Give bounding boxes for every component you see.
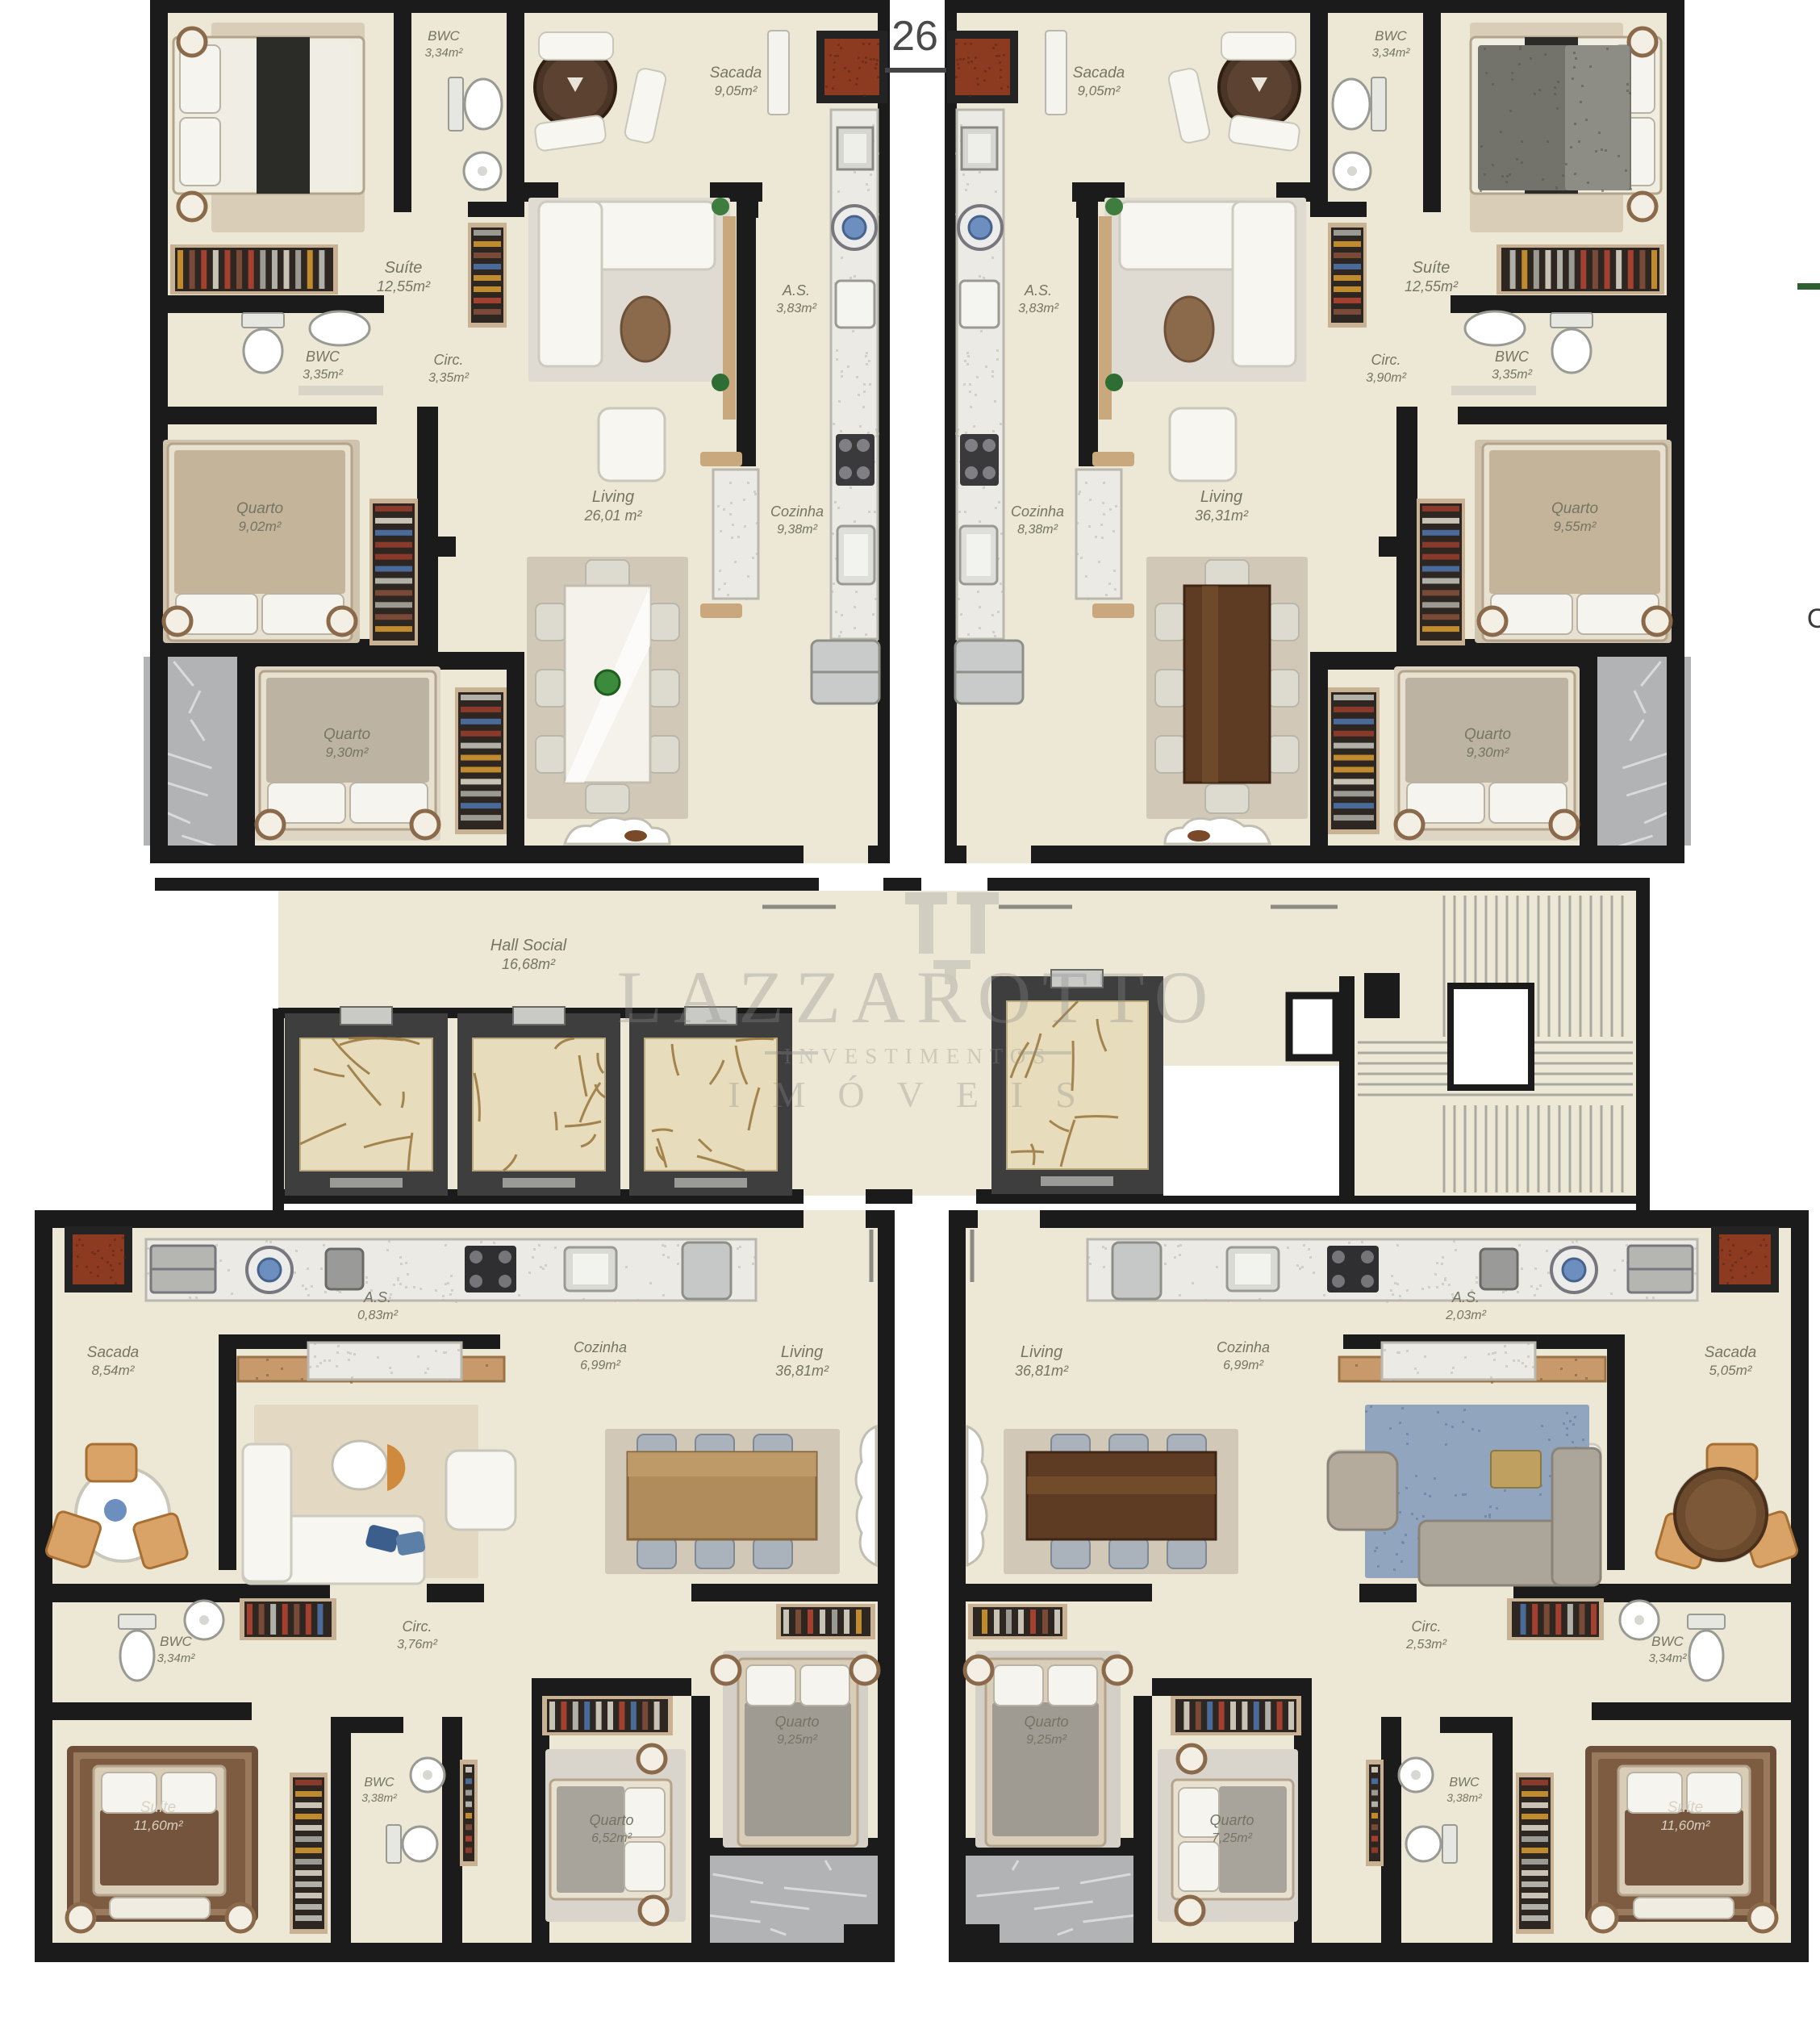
svg-text:3,76m²: 3,76m² bbox=[397, 1638, 437, 1652]
svg-text:Quarto: Quarto bbox=[324, 726, 370, 743]
svg-text:Cozinha: Cozinha bbox=[574, 1339, 627, 1355]
svg-text:BWC: BWC bbox=[1495, 349, 1530, 365]
svg-text:12,55m²: 12,55m² bbox=[1405, 278, 1459, 294]
svg-text:A.S.: A.S. bbox=[1451, 1289, 1480, 1305]
svg-text:Living: Living bbox=[1021, 1343, 1062, 1361]
svg-text:26,01 m²: 26,01 m² bbox=[583, 507, 642, 524]
svg-text:Quarto: Quarto bbox=[1024, 1714, 1068, 1730]
svg-text:9,38m²: 9,38m² bbox=[777, 523, 817, 537]
svg-text:Cozinha: Cozinha bbox=[1217, 1339, 1270, 1355]
svg-text:12,55m²: 12,55m² bbox=[377, 278, 431, 294]
svg-text:LAZZAROTTO: LAZZAROTTO bbox=[617, 956, 1219, 1038]
svg-text:9,30m²: 9,30m² bbox=[1467, 745, 1510, 760]
svg-text:Sacada: Sacada bbox=[87, 1344, 139, 1361]
svg-text:Suíte: Suíte bbox=[140, 1799, 176, 1816]
svg-text:Cozinha: Cozinha bbox=[770, 503, 824, 520]
svg-text:A.S.: A.S. bbox=[363, 1289, 391, 1305]
svg-text:Quarto: Quarto bbox=[236, 500, 283, 517]
svg-text:INVESTIMENTOS: INVESTIMENTOS bbox=[784, 1044, 1053, 1068]
svg-text:3,38m²: 3,38m² bbox=[1446, 1791, 1483, 1804]
svg-text:11,60m²: 11,60m² bbox=[133, 1818, 183, 1833]
svg-text:Sacada: Sacada bbox=[1073, 65, 1125, 81]
svg-text:Circ.: Circ. bbox=[1412, 1618, 1442, 1635]
svg-text:Living: Living bbox=[592, 488, 634, 506]
svg-text:Suíte: Suíte bbox=[1413, 259, 1451, 277]
svg-text:C: C bbox=[1807, 603, 1820, 634]
svg-text:Quarto: Quarto bbox=[1551, 500, 1598, 517]
svg-text:BWC: BWC bbox=[428, 28, 460, 44]
svg-text:6,99m²: 6,99m² bbox=[1223, 1359, 1263, 1372]
svg-text:Living: Living bbox=[781, 1343, 823, 1361]
svg-text:BWC: BWC bbox=[1449, 1776, 1480, 1789]
svg-text:IMÓVEIS: IMÓVEIS bbox=[728, 1074, 1108, 1115]
svg-text:A.S.: A.S. bbox=[1024, 282, 1052, 299]
svg-text:6,52m²: 6,52m² bbox=[591, 1831, 632, 1845]
svg-text:BWC: BWC bbox=[1375, 28, 1407, 44]
svg-text:3,90m²: 3,90m² bbox=[1366, 371, 1406, 385]
svg-text:3,34m²: 3,34m² bbox=[157, 1652, 196, 1665]
svg-text:3,34m²: 3,34m² bbox=[1649, 1652, 1688, 1665]
svg-text:0,83m²: 0,83m² bbox=[357, 1309, 398, 1322]
svg-text:3,83m²: 3,83m² bbox=[1018, 302, 1058, 315]
svg-text:8,38m²: 8,38m² bbox=[1017, 523, 1058, 537]
svg-text:2,53m²: 2,53m² bbox=[1405, 1638, 1446, 1652]
svg-text:3,38m²: 3,38m² bbox=[361, 1791, 398, 1804]
svg-text:5,05m²: 5,05m² bbox=[1709, 1363, 1753, 1378]
svg-text:9,05m²: 9,05m² bbox=[715, 83, 758, 98]
svg-text:3,35m²: 3,35m² bbox=[428, 371, 469, 385]
svg-text:Hall Social: Hall Social bbox=[490, 937, 567, 954]
svg-text:Circ.: Circ. bbox=[403, 1618, 432, 1635]
svg-text:Suíte: Suíte bbox=[385, 259, 423, 277]
svg-text:Quarto: Quarto bbox=[589, 1812, 633, 1828]
svg-text:7,25m²: 7,25m² bbox=[1212, 1831, 1252, 1845]
svg-text:BWC: BWC bbox=[1651, 1634, 1684, 1649]
svg-text:BWC: BWC bbox=[364, 1776, 394, 1789]
svg-text:9,55m²: 9,55m² bbox=[1554, 519, 1597, 534]
svg-text:9,30m²: 9,30m² bbox=[326, 745, 369, 760]
svg-text:Quarto: Quarto bbox=[1209, 1812, 1254, 1828]
svg-text:3,34m²: 3,34m² bbox=[425, 46, 464, 60]
svg-text:9,05m²: 9,05m² bbox=[1078, 83, 1121, 98]
svg-text:36,31m²: 36,31m² bbox=[1195, 507, 1249, 524]
svg-text:Circ.: Circ. bbox=[1371, 352, 1401, 368]
svg-text:BWC: BWC bbox=[306, 349, 340, 365]
svg-text:Sacada: Sacada bbox=[1705, 1344, 1756, 1361]
svg-text:BWC: BWC bbox=[160, 1634, 192, 1649]
svg-text:3,34m²: 3,34m² bbox=[1372, 46, 1411, 60]
svg-text:8,54m²: 8,54m² bbox=[92, 1363, 136, 1378]
svg-text:Living: Living bbox=[1200, 488, 1242, 506]
svg-text:26: 26 bbox=[891, 13, 938, 60]
svg-text:3,83m²: 3,83m² bbox=[776, 302, 816, 315]
svg-text:3,35m²: 3,35m² bbox=[1492, 368, 1532, 382]
svg-text:Circ.: Circ. bbox=[434, 352, 464, 368]
svg-text:Sacada: Sacada bbox=[710, 65, 762, 81]
svg-text:2,03m²: 2,03m² bbox=[1445, 1309, 1486, 1322]
svg-text:11,60m²: 11,60m² bbox=[1660, 1818, 1710, 1833]
svg-text:Quarto: Quarto bbox=[774, 1714, 819, 1730]
svg-text:9,25m²: 9,25m² bbox=[1026, 1733, 1067, 1747]
svg-text:16,68m²: 16,68m² bbox=[502, 956, 556, 972]
svg-text:9,02m²: 9,02m² bbox=[239, 519, 282, 534]
svg-text:Quarto: Quarto bbox=[1464, 726, 1511, 743]
svg-text:Cozinha: Cozinha bbox=[1011, 503, 1064, 520]
svg-text:Suíte: Suíte bbox=[1668, 1799, 1703, 1816]
svg-text:36,81m²: 36,81m² bbox=[1015, 1363, 1069, 1379]
svg-text:9,25m²: 9,25m² bbox=[777, 1733, 817, 1747]
svg-text:3,35m²: 3,35m² bbox=[303, 368, 343, 382]
svg-text:A.S.: A.S. bbox=[782, 282, 810, 299]
svg-text:6,99m²: 6,99m² bbox=[580, 1359, 620, 1372]
svg-text:36,81m²: 36,81m² bbox=[775, 1363, 829, 1379]
